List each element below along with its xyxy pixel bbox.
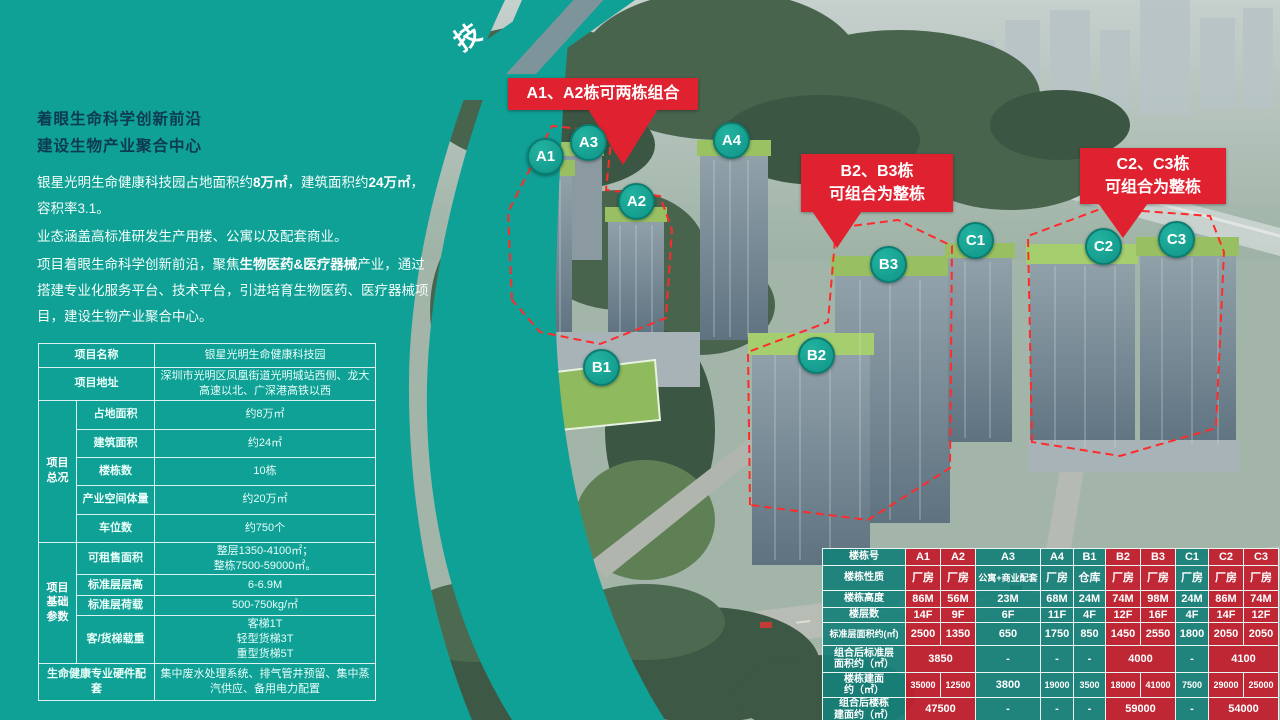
spec-cell: B2 xyxy=(1106,549,1141,566)
hardware-label: 生命健康专业硬件配套 xyxy=(39,663,155,700)
row-value: 500-750kg/㎡ xyxy=(155,596,376,616)
spec-cell: 74M xyxy=(1244,591,1279,608)
spec-cell: 厂房 xyxy=(1141,566,1176,591)
overview-group-label: 项目 总况 xyxy=(39,400,77,542)
spec-cell: 35000 xyxy=(906,673,941,698)
spec-cell-merged: 47500 xyxy=(906,698,976,720)
row-label: 楼栋数 xyxy=(77,457,155,485)
spec-cell: - xyxy=(1074,698,1106,720)
spec-cell: 11F xyxy=(1041,608,1074,623)
outline-b2-b3 xyxy=(748,220,952,520)
spec-cell: 12F xyxy=(1244,608,1279,623)
spec-cell: 12F xyxy=(1106,608,1141,623)
project-name-value: 银星光明生命健康科技园 xyxy=(155,344,376,368)
spec-cell: 74M xyxy=(1106,591,1141,608)
spec-cell: 12500 xyxy=(941,673,976,698)
badge-b1: B1 xyxy=(583,349,620,386)
spec-cell: B1 xyxy=(1074,549,1106,566)
spec-cell-merged: 54000 xyxy=(1209,698,1279,720)
badge-b3: B3 xyxy=(870,246,907,283)
spec-row-label: 楼栋性质 xyxy=(823,566,906,591)
spec-cell: 41000 xyxy=(1141,673,1176,698)
project-overview-table: 项目名称银星光明生命健康科技园 项目地址深圳市光明区凤凰街道光明城站西侧、龙大高… xyxy=(38,343,376,701)
row-label: 可租售面积 xyxy=(77,542,155,575)
row-label: 标准层荷载 xyxy=(77,596,155,616)
row-value: 约24㎡ xyxy=(155,429,376,457)
spec-cell-merged: 4000 xyxy=(1106,646,1176,673)
spec-cell: 25000 xyxy=(1244,673,1279,698)
spec-cell: 4F xyxy=(1176,608,1209,623)
spec-cell: 19000 xyxy=(1041,673,1074,698)
spec-row-label: 楼层数 xyxy=(823,608,906,623)
row-label: 标准层层高 xyxy=(77,575,155,596)
row-value: 约750个 xyxy=(155,514,376,542)
callout-b2-b3: B2、B3栋 可组合为整栋 xyxy=(801,154,953,212)
headline: 着眼生命科学创新前沿 建设生物产业聚合中心 xyxy=(37,106,202,160)
row-value: 6-6.9M xyxy=(155,575,376,596)
intro-paragraphs: 银星光明生命健康科技园占地面积约8万㎡，建筑面积约24万㎡，容积率3.1。 业态… xyxy=(37,170,435,332)
callout-b-pointer xyxy=(812,211,862,248)
spec-cell: 2050 xyxy=(1209,623,1244,646)
spec-row-label: 楼栋高度 xyxy=(823,591,906,608)
spec-cell: 24M xyxy=(1176,591,1209,608)
callout-a1-a2: A1、A2栋可两栋组合 xyxy=(508,78,698,110)
spec-cell: 2550 xyxy=(1141,623,1176,646)
row-label: 客/货梯载重 xyxy=(77,616,155,664)
spec-cell: A1 xyxy=(906,549,941,566)
spec-cell: 1450 xyxy=(1106,623,1141,646)
spec-cell-merged: 4100 xyxy=(1209,646,1279,673)
spec-cell: 1750 xyxy=(1041,623,1074,646)
row-label: 占地面积 xyxy=(77,400,155,429)
spec-cell: A4 xyxy=(1041,549,1074,566)
badge-c3: C3 xyxy=(1158,221,1195,258)
hardware-value: 集中废水处理系统、排气管井预留、集中蒸汽供应、备用电力配置 xyxy=(155,663,376,700)
spec-row-label: 组合后标准层 面积约（㎡） xyxy=(823,646,906,673)
badge-a3: A3 xyxy=(570,124,607,161)
headline-line1: 着眼生命科学创新前沿 xyxy=(37,106,202,133)
spec-row-label: 楼栋号 xyxy=(823,549,906,566)
spec-cell: 23M xyxy=(976,591,1041,608)
spec-cell: 2500 xyxy=(906,623,941,646)
spec-cell: - xyxy=(1041,646,1074,673)
headline-line2: 建设生物产业聚合中心 xyxy=(37,133,202,160)
spec-cell: 厂房 xyxy=(1209,566,1244,591)
row-label: 产业空间体量 xyxy=(77,485,155,514)
spec-cell: 14F xyxy=(906,608,941,623)
spec-cell-merged: 59000 xyxy=(1106,698,1176,720)
spec-cell: 850 xyxy=(1074,623,1106,646)
spec-cell: 86M xyxy=(906,591,941,608)
building-spec-table: 楼栋号 A1A2A3A4B1B2B3C1C2C3 楼栋性质 厂房厂房公寓+商业配… xyxy=(822,548,1279,720)
row-value: 约20万㎡ xyxy=(155,485,376,514)
spec-row-label: 楼栋建面 约（㎡） xyxy=(823,673,906,698)
row-label: 建筑面积 xyxy=(77,429,155,457)
spec-cell: B3 xyxy=(1141,549,1176,566)
spec-cell: 4F xyxy=(1074,608,1106,623)
spec-cell: 厂房 xyxy=(1176,566,1209,591)
spec-cell: 56M xyxy=(941,591,976,608)
spec-cell: 650 xyxy=(976,623,1041,646)
spec-row-label: 组合后楼栋 建面约（㎡） xyxy=(823,698,906,720)
spec-cell: 98M xyxy=(1141,591,1176,608)
spec-cell: 24M xyxy=(1074,591,1106,608)
spec-cell: A2 xyxy=(941,549,976,566)
badge-c1: C1 xyxy=(957,222,994,259)
project-addr-label: 项目地址 xyxy=(39,368,155,401)
spec-cell: 29000 xyxy=(1209,673,1244,698)
spec-cell: 68M xyxy=(1041,591,1074,608)
intro-para1: 银星光明生命健康科技园占地面积约8万㎡，建筑面积约24万㎡，容积率3.1。 xyxy=(37,170,435,222)
spec-cell: 16F xyxy=(1141,608,1176,623)
spec-cell: 公寓+商业配套 xyxy=(976,566,1041,591)
badge-a4: A4 xyxy=(713,122,750,159)
row-value: 整层1350-4100㎡； 整栋7500-59000㎡。 xyxy=(155,542,376,575)
spec-cell: 3800 xyxy=(976,673,1041,698)
spec-cell: 7500 xyxy=(1176,673,1209,698)
badge-c2: C2 xyxy=(1085,228,1122,265)
spec-cell: 18000 xyxy=(1106,673,1141,698)
intro-para3: 项目着眼生命科学创新前沿，聚焦生物医药&医疗器械产业，通过搭建专业化服务平台、技… xyxy=(37,252,435,330)
project-name-label: 项目名称 xyxy=(39,344,155,368)
spec-cell: - xyxy=(1176,646,1209,673)
slide: 技 着眼生命科学创新前沿 建设生物产业聚合中心 银星光明生命健康科技园占地面积约… xyxy=(0,0,1280,720)
spec-cell: 9F xyxy=(941,608,976,623)
intro-para2: 业态涵盖高标准研发生产用楼、公寓以及配套商业。 xyxy=(37,224,435,250)
badge-a2: A2 xyxy=(618,183,655,220)
callout-c2-c3: C2、C3栋 可组合为整栋 xyxy=(1080,148,1226,204)
spec-cell: - xyxy=(1041,698,1074,720)
spec-cell-merged: 3850 xyxy=(906,646,976,673)
spec-cell: 厂房 xyxy=(1041,566,1074,591)
spec-cell: 6F xyxy=(976,608,1041,623)
spec-cell: - xyxy=(976,698,1041,720)
outline-c2-c3 xyxy=(1028,208,1224,456)
params-group-label: 项目基础参数 xyxy=(39,542,77,663)
spec-cell: A3 xyxy=(976,549,1041,566)
spec-cell: 1800 xyxy=(1176,623,1209,646)
spec-cell: 86M xyxy=(1209,591,1244,608)
row-label: 车位数 xyxy=(77,514,155,542)
spec-row-label: 标准层面积约(㎡) xyxy=(823,623,906,646)
spec-cell: 1350 xyxy=(941,623,976,646)
badge-a1: A1 xyxy=(527,138,564,175)
spec-cell: 3500 xyxy=(1074,673,1106,698)
row-value: 10栋 xyxy=(155,457,376,485)
spec-cell: 14F xyxy=(1209,608,1244,623)
spec-cell: 仓库 xyxy=(1074,566,1106,591)
spec-cell: - xyxy=(1176,698,1209,720)
spec-cell: 厂房 xyxy=(1106,566,1141,591)
badge-b2: B2 xyxy=(798,337,835,374)
row-value: 客梯1T 轻型货梯3T 重型货梯5T xyxy=(155,616,376,664)
spec-cell: 厂房 xyxy=(941,566,976,591)
spec-cell: 厂房 xyxy=(1244,566,1279,591)
spec-cell: C2 xyxy=(1209,549,1244,566)
project-addr-value: 深圳市光明区凤凰街道光明城站西侧、龙大高速以北、广深港高铁以西 xyxy=(155,368,376,401)
row-value: 约8万㎡ xyxy=(155,400,376,429)
spec-cell: 2050 xyxy=(1244,623,1279,646)
spec-cell: - xyxy=(976,646,1041,673)
spec-cell: 厂房 xyxy=(906,566,941,591)
spec-cell: - xyxy=(1074,646,1106,673)
spec-cell: C3 xyxy=(1244,549,1279,566)
spec-cell: C1 xyxy=(1176,549,1209,566)
